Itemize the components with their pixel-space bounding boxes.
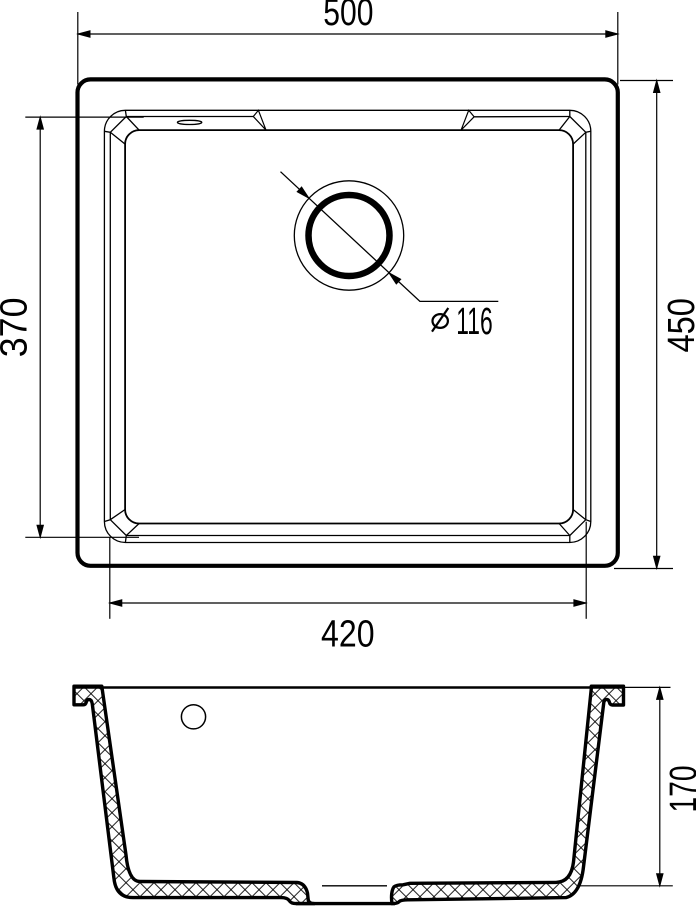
svg-text:420: 420 (321, 613, 375, 655)
svg-text:370: 370 (0, 298, 35, 358)
svg-text:450: 450 (661, 298, 696, 353)
svg-text:500: 500 (323, 0, 373, 34)
svg-text:170: 170 (663, 766, 696, 813)
svg-text:116: 116 (456, 301, 492, 343)
